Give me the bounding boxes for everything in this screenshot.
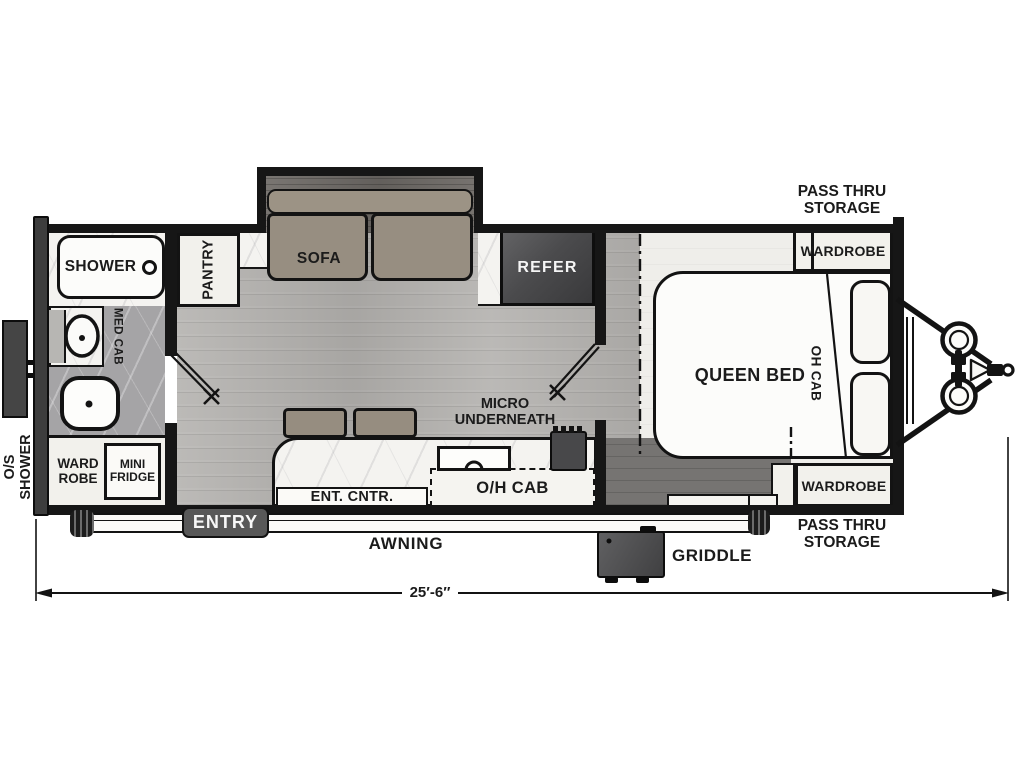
propane-tanks-icon bbox=[943, 324, 976, 413]
dimension-arrow-left bbox=[35, 589, 52, 598]
awning-label: AWNING bbox=[336, 534, 476, 554]
slideout-wall-top bbox=[257, 167, 483, 176]
bath-wall-lower bbox=[165, 423, 177, 508]
shower-drain-icon bbox=[142, 260, 157, 275]
bed-pillow-bottom bbox=[850, 372, 891, 456]
slideout-wall-right bbox=[474, 167, 483, 233]
ent-cntr-label: ENT. CNTR. bbox=[276, 489, 428, 505]
shower-label: SHOWER bbox=[65, 258, 137, 276]
oh-cab-kitchen-label: O/H CAB bbox=[430, 479, 595, 498]
refer-label: REFER bbox=[500, 259, 595, 277]
awning-end-cap-left bbox=[70, 510, 94, 537]
med-cab-label: MED CAB bbox=[111, 306, 124, 368]
outside-shower-box bbox=[2, 320, 28, 418]
entry-badge: ENTRY bbox=[182, 507, 269, 538]
entry-label: ENTRY bbox=[193, 512, 258, 533]
wall-top-left bbox=[44, 224, 258, 233]
bed-pillow-top bbox=[850, 280, 891, 364]
sofa-seat-left bbox=[267, 213, 368, 281]
os-shower-label: O/S SHOWER bbox=[2, 419, 36, 515]
bath-wall-upper bbox=[165, 233, 177, 356]
bedroom-wall-upper bbox=[595, 233, 606, 345]
pass-thru-top-label: PASS THRU STORAGE bbox=[762, 184, 922, 217]
bed-foot-bench-divider bbox=[748, 496, 750, 505]
griddle-box bbox=[597, 531, 665, 578]
ward-robe-label: WARD ROBE bbox=[50, 457, 106, 486]
marble-strip-right-of-sofa bbox=[478, 233, 502, 306]
floorplan-canvas: SHOWER MED CAB WARD ROBE MINI FRIDGE PAN… bbox=[0, 0, 1024, 768]
hitch-coupler-icon bbox=[971, 360, 1013, 380]
slideout-wall-left bbox=[257, 167, 266, 233]
dimension-arrow-right bbox=[992, 589, 1009, 598]
sofa-label: SOFA bbox=[280, 250, 358, 268]
vanity-side bbox=[49, 310, 66, 363]
stool-right bbox=[353, 408, 417, 438]
wall-right-front bbox=[893, 217, 904, 515]
marble-strip-left-of-sofa bbox=[240, 233, 267, 269]
micro-underneath-label: MICRO UNDERNEATH bbox=[430, 396, 580, 428]
tongue-frame bbox=[897, 299, 991, 445]
wardrobe-top-label: WARDROBE bbox=[793, 243, 893, 259]
sofa-backrest bbox=[267, 189, 473, 214]
oh-cab-bed-label: OH CAB bbox=[809, 336, 824, 412]
stool-left bbox=[283, 408, 347, 438]
wall-top-right bbox=[482, 224, 903, 233]
stove-range bbox=[550, 431, 587, 471]
mini-fridge-label: MINI FRIDGE bbox=[107, 458, 158, 484]
pass-thru-bottom-label: PASS THRU STORAGE bbox=[762, 518, 922, 551]
dimension-label: 25′-6″ bbox=[392, 584, 468, 601]
pantry-label: PANTRY bbox=[201, 236, 216, 304]
griddle-label: GRIDDLE bbox=[672, 546, 758, 566]
wardrobe-bottom-label: WARDROBE bbox=[795, 478, 893, 494]
mini-fridge: MINI FRIDGE bbox=[104, 443, 161, 500]
kitchen-sink bbox=[437, 446, 511, 471]
shower-stall: SHOWER bbox=[57, 235, 165, 299]
bedroom-wall-lower bbox=[595, 420, 606, 508]
sofa-seat-right bbox=[371, 213, 473, 281]
